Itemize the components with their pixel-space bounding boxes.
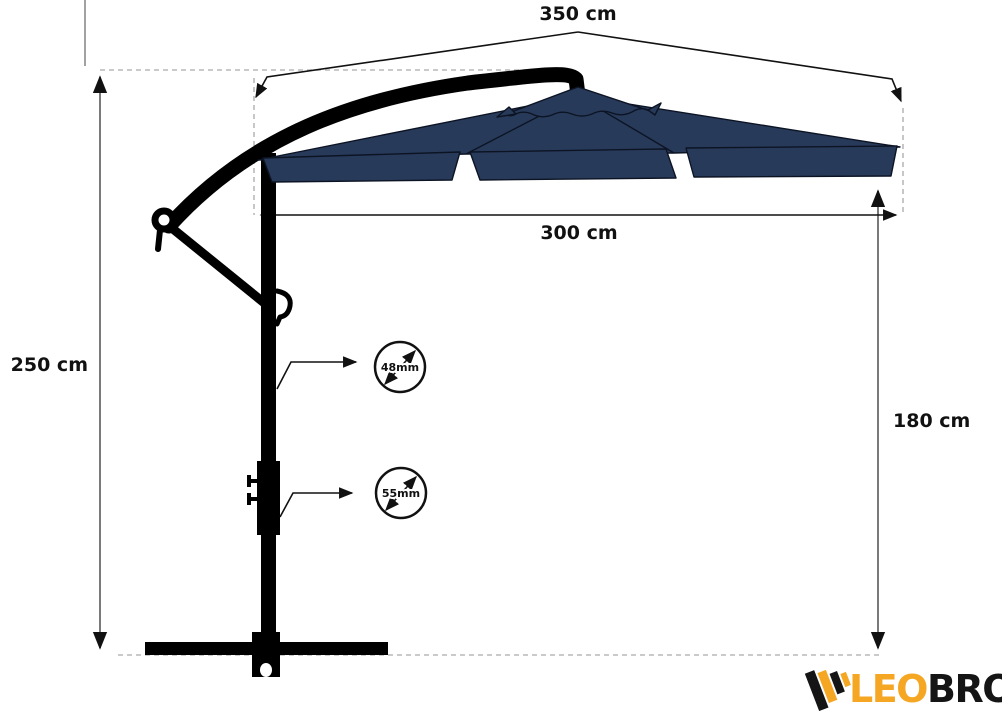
dimension-width-canopy: 300 cm	[261, 215, 896, 244]
support-strut	[173, 229, 268, 306]
logo-text-primary: LEO	[849, 667, 927, 711]
callout-pole-lower-diameter: 55mm	[280, 468, 426, 518]
diagram-svg: 250 cm 180 cm 300 cm 350 cm	[0, 0, 1002, 711]
callout-label-55mm: 55mm	[382, 487, 420, 500]
ring-toggle	[158, 230, 160, 249]
callout-label-48mm: 48mm	[381, 361, 419, 374]
pole-upper	[261, 153, 276, 643]
dimension-height-overall: 250 cm	[11, 77, 100, 648]
dimension-label-180cm: 180 cm	[893, 410, 970, 432]
dimension-label-300cm: 300 cm	[540, 222, 617, 244]
valance-middle	[470, 149, 676, 180]
dimension-label-250cm: 250 cm	[11, 354, 88, 376]
brand-logo: LEOBRO	[805, 660, 1002, 711]
dimension-height-clearance: 180 cm	[878, 191, 970, 648]
crank-handle-icon	[277, 291, 290, 324]
canopy-top-cap	[506, 87, 650, 117]
valance-left	[263, 152, 460, 182]
logo-mane-icon	[805, 660, 856, 711]
valance-right	[686, 146, 897, 177]
callout-pole-upper-diameter: 48mm	[277, 342, 425, 392]
dimension-label-350cm: 350 cm	[539, 3, 616, 25]
arm-end-ring	[155, 211, 173, 229]
cross-base	[145, 632, 388, 677]
product-dimension-diagram: 250 cm 180 cm 300 cm 350 cm	[0, 0, 1002, 711]
logo-text-secondary: BRO	[927, 667, 1002, 711]
svg-text:LEOBRO: LEOBRO	[849, 667, 1002, 711]
